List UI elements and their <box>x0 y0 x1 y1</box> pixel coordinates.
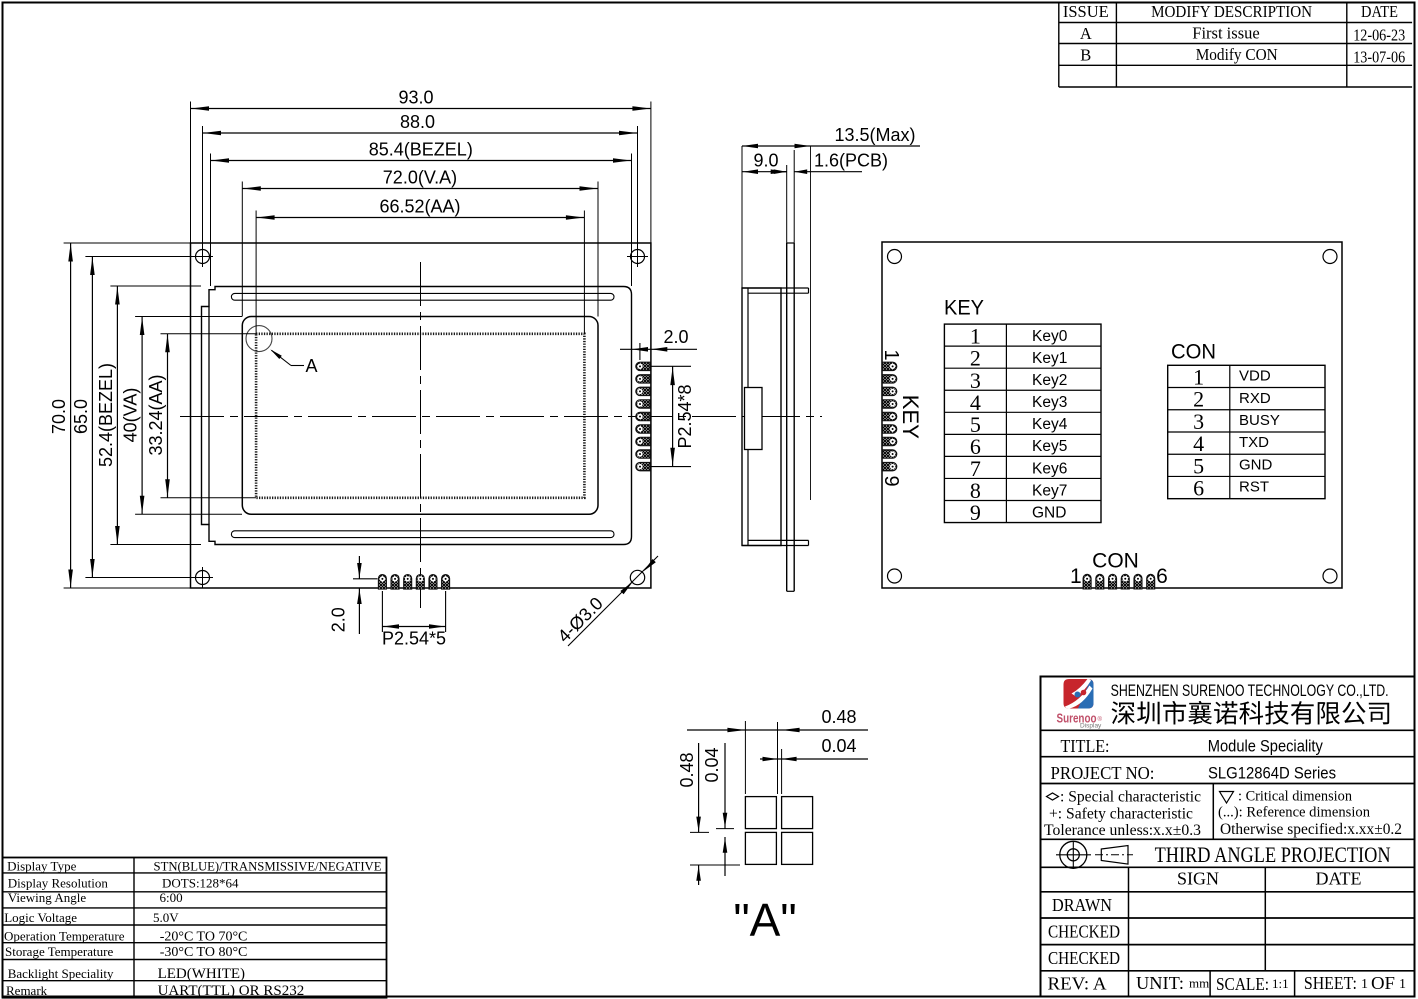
svg-text:MODIFY DESCRIPTION: MODIFY DESCRIPTION <box>1151 2 1312 21</box>
svg-text:40(VA): 40(VA) <box>121 388 141 443</box>
svg-text:Tolerance unless:x.x±0.3: Tolerance unless:x.x±0.3 <box>1044 822 1201 839</box>
svg-text:2.0: 2.0 <box>329 607 349 632</box>
svg-text:Module Speciality: Module Speciality <box>1208 738 1324 756</box>
svg-text:P2.54*8: P2.54*8 <box>675 384 695 448</box>
svg-text:Key1: Key1 <box>1032 350 1067 367</box>
svg-text:1: 1 <box>1070 565 1082 588</box>
svg-text:SLG12864D Series: SLG12864D Series <box>1208 765 1336 783</box>
svg-text:12-06-23: 12-06-23 <box>1353 25 1405 44</box>
svg-text:mm: mm <box>1189 976 1209 991</box>
svg-text:DATE: DATE <box>1316 869 1362 889</box>
svg-text:Modify CON: Modify CON <box>1196 45 1278 64</box>
svg-text:6: 6 <box>1156 565 1168 588</box>
svg-text:5.0V: 5.0V <box>153 910 179 925</box>
svg-text:52.4(BEZEL): 52.4(BEZEL) <box>96 363 116 467</box>
svg-text:: Critical dimension: : Critical dimension <box>1238 789 1352 805</box>
svg-text:Operation Temperature: Operation Temperature <box>4 928 125 943</box>
svg-text:+: Safety characteristic: +: Safety characteristic <box>1049 806 1193 823</box>
svg-text:CON: CON <box>1171 340 1216 364</box>
svg-text:13-07-06: 13-07-06 <box>1353 48 1405 67</box>
svg-text:Key5: Key5 <box>1032 438 1067 455</box>
svg-text:93.0: 93.0 <box>398 88 433 108</box>
svg-text:9: 9 <box>880 475 902 486</box>
svg-text:CHECKED: CHECKED <box>1048 922 1120 942</box>
svg-text:GND: GND <box>1032 504 1066 521</box>
svg-text:Display Type: Display Type <box>7 858 76 873</box>
svg-text:0.48: 0.48 <box>821 707 856 727</box>
svg-text:6: 6 <box>1193 475 1204 500</box>
svg-text:Backlight Speciality: Backlight Speciality <box>8 966 114 981</box>
svg-text:0.04: 0.04 <box>821 736 856 756</box>
svg-text:65.0: 65.0 <box>71 399 91 434</box>
svg-text:88.0: 88.0 <box>400 112 435 132</box>
svg-text:DRAWN: DRAWN <box>1052 895 1112 915</box>
svg-text:A: A <box>306 356 318 376</box>
svg-text:70.0: 70.0 <box>49 399 69 434</box>
svg-text:SHENZHEN SURENOO TECHNOLOGY CO: SHENZHEN SURENOO TECHNOLOGY CO.,LTD. <box>1111 681 1389 700</box>
svg-text:Key3: Key3 <box>1032 394 1067 411</box>
svg-text:1.6(PCB): 1.6(PCB) <box>814 151 888 171</box>
svg-text:Key4: Key4 <box>1032 416 1068 433</box>
svg-text:CON: CON <box>1092 550 1139 573</box>
svg-text:TXD: TXD <box>1239 434 1269 451</box>
svg-text:ISSUE: ISSUE <box>1063 2 1109 21</box>
svg-text:(...): Reference dimension: (...): Reference dimension <box>1218 805 1370 821</box>
svg-text:Logic Voltage: Logic Voltage <box>4 910 77 925</box>
svg-text:VDD: VDD <box>1239 368 1271 385</box>
svg-text:KEY: KEY <box>898 395 923 439</box>
svg-text:Remark: Remark <box>6 983 48 998</box>
svg-text:TITLE:: TITLE: <box>1061 736 1110 756</box>
svg-text:0.48: 0.48 <box>677 752 697 787</box>
svg-text:Viewing Angle: Viewing Angle <box>8 890 87 905</box>
svg-text:33.24(AA): 33.24(AA) <box>146 374 166 455</box>
svg-text:UART(TTL) OR RS232: UART(TTL) OR RS232 <box>158 983 305 999</box>
svg-text:Display Resolution: Display Resolution <box>8 876 109 891</box>
svg-text:6:00: 6:00 <box>160 890 183 905</box>
svg-text:P2.54*5: P2.54*5 <box>382 629 446 649</box>
svg-text:STN(BLUE)/TRANSMISSIVE/NEGATIV: STN(BLUE)/TRANSMISSIVE/NEGATIVE <box>154 858 382 873</box>
svg-text:Display: Display <box>1080 723 1102 730</box>
svg-text:OF: OF <box>1371 973 1395 993</box>
svg-text:9.0: 9.0 <box>753 151 778 171</box>
svg-text:Otherwise specified:x.xx±0.2: Otherwise specified:x.xx±0.2 <box>1220 821 1402 838</box>
svg-text:85.4(BEZEL): 85.4(BEZEL) <box>369 140 473 160</box>
svg-text:-30°C TO 80°C: -30°C TO 80°C <box>160 945 248 960</box>
svg-text:UNIT:: UNIT: <box>1136 973 1184 993</box>
svg-text:THIRD ANGLE PROJECTION: THIRD ANGLE PROJECTION <box>1155 842 1391 867</box>
svg-text:KEY: KEY <box>944 296 984 320</box>
svg-text:"A": "A" <box>733 894 796 946</box>
svg-text:1: 1 <box>880 349 902 360</box>
svg-text:RST: RST <box>1239 479 1269 496</box>
svg-text:SHEET:: SHEET: <box>1304 973 1357 993</box>
svg-text:1:1: 1:1 <box>1272 976 1289 991</box>
svg-text:RXD: RXD <box>1239 390 1271 407</box>
svg-text:BUSY: BUSY <box>1239 412 1280 429</box>
svg-text:PROJECT NO:: PROJECT NO: <box>1051 763 1155 783</box>
svg-text:1: 1 <box>1361 977 1368 992</box>
svg-text:0.04: 0.04 <box>702 747 722 782</box>
svg-text:First issue: First issue <box>1192 23 1259 42</box>
svg-text:GND: GND <box>1239 456 1273 473</box>
svg-text:: Special characteristic: : Special characteristic <box>1060 789 1201 806</box>
svg-text:-20°C TO 70°C: -20°C TO 70°C <box>160 929 248 944</box>
svg-text:72.0(V.A): 72.0(V.A) <box>383 168 457 188</box>
svg-text:9: 9 <box>970 500 981 525</box>
svg-text:1: 1 <box>1399 977 1406 992</box>
svg-text:DATE: DATE <box>1361 2 1398 21</box>
svg-text:SIGN: SIGN <box>1177 869 1219 889</box>
svg-text:Key6: Key6 <box>1032 460 1067 477</box>
svg-text:DOTS:128*64: DOTS:128*64 <box>162 876 239 891</box>
svg-text:Storage Temperature: Storage Temperature <box>5 944 113 959</box>
svg-text:SCALE:: SCALE: <box>1216 974 1269 994</box>
svg-text:Key2: Key2 <box>1032 372 1067 389</box>
svg-text:Key7: Key7 <box>1032 482 1067 499</box>
svg-text:A: A <box>1080 24 1092 43</box>
svg-text:B: B <box>1080 46 1091 65</box>
svg-text:CHECKED: CHECKED <box>1048 948 1120 968</box>
svg-text:66.52(AA): 66.52(AA) <box>379 197 460 217</box>
svg-text:Key0: Key0 <box>1032 328 1068 345</box>
svg-text:LED(WHITE): LED(WHITE) <box>158 966 245 982</box>
svg-text:REV: A: REV: A <box>1048 974 1107 994</box>
svg-text:13.5(Max): 13.5(Max) <box>834 125 915 145</box>
svg-text:2.0: 2.0 <box>663 327 688 347</box>
